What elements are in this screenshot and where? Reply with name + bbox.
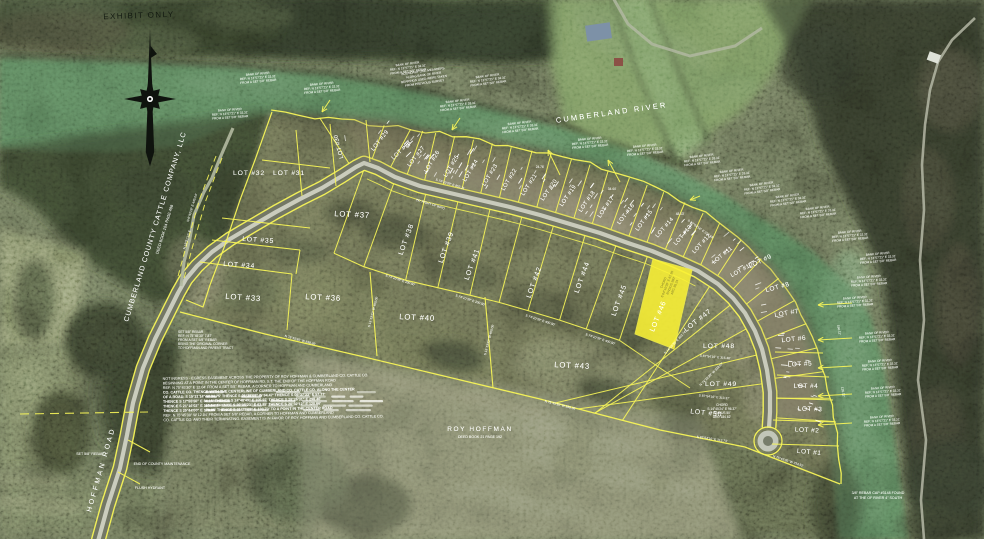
svg-text:SET 5/8" REBAR: SET 5/8" REBAR bbox=[76, 452, 104, 456]
svg-text:LOT #37: LOT #37 bbox=[334, 209, 370, 220]
svg-text:ROY HOFFMAN: ROY HOFFMAN bbox=[447, 426, 513, 433]
svg-text:LOT #31: LOT #31 bbox=[273, 170, 305, 177]
svg-text:24.76': 24.76' bbox=[536, 165, 545, 169]
svg-text:LOT #4: LOT #4 bbox=[794, 383, 819, 390]
svg-text:LOT #3: LOT #3 bbox=[798, 406, 823, 414]
svg-text:34.44': 34.44' bbox=[608, 187, 617, 191]
svg-text:LOT #43: LOT #43 bbox=[554, 360, 590, 371]
svg-text:LOT #48: LOT #48 bbox=[703, 343, 735, 350]
svg-text:END OF COUNTY MAINTENANCE: END OF COUNTY MAINTENANCE bbox=[134, 462, 191, 466]
svg-text:3/8" REBAR CAP #3148 FOUND: 3/8" REBAR CAP #3148 FOUND bbox=[852, 491, 905, 495]
svg-text:LOT #36: LOT #36 bbox=[305, 292, 341, 303]
svg-text:FLUSH HYDRANT: FLUSH HYDRANT bbox=[135, 486, 166, 490]
svg-text:ARC 184.62': ARC 184.62' bbox=[713, 415, 731, 419]
svg-text:LOT #2: LOT #2 bbox=[795, 426, 820, 434]
svg-text:TO HOFFMAN AND PARENT TRACT: TO HOFFMAN AND PARENT TRACT bbox=[178, 346, 233, 350]
svg-text:48.13': 48.13' bbox=[676, 212, 685, 216]
svg-text:LOT #49: LOT #49 bbox=[705, 381, 737, 388]
svg-text:LOT #32: LOT #32 bbox=[233, 170, 265, 177]
svg-text:AT THE OF RIVER 4" SOUTH: AT THE OF RIVER 4" SOUTH bbox=[854, 496, 903, 500]
svg-text:DEED BOOK 21 PAGE 192: DEED BOOK 21 PAGE 192 bbox=[458, 435, 502, 439]
svg-text:LOT #40: LOT #40 bbox=[399, 312, 435, 323]
